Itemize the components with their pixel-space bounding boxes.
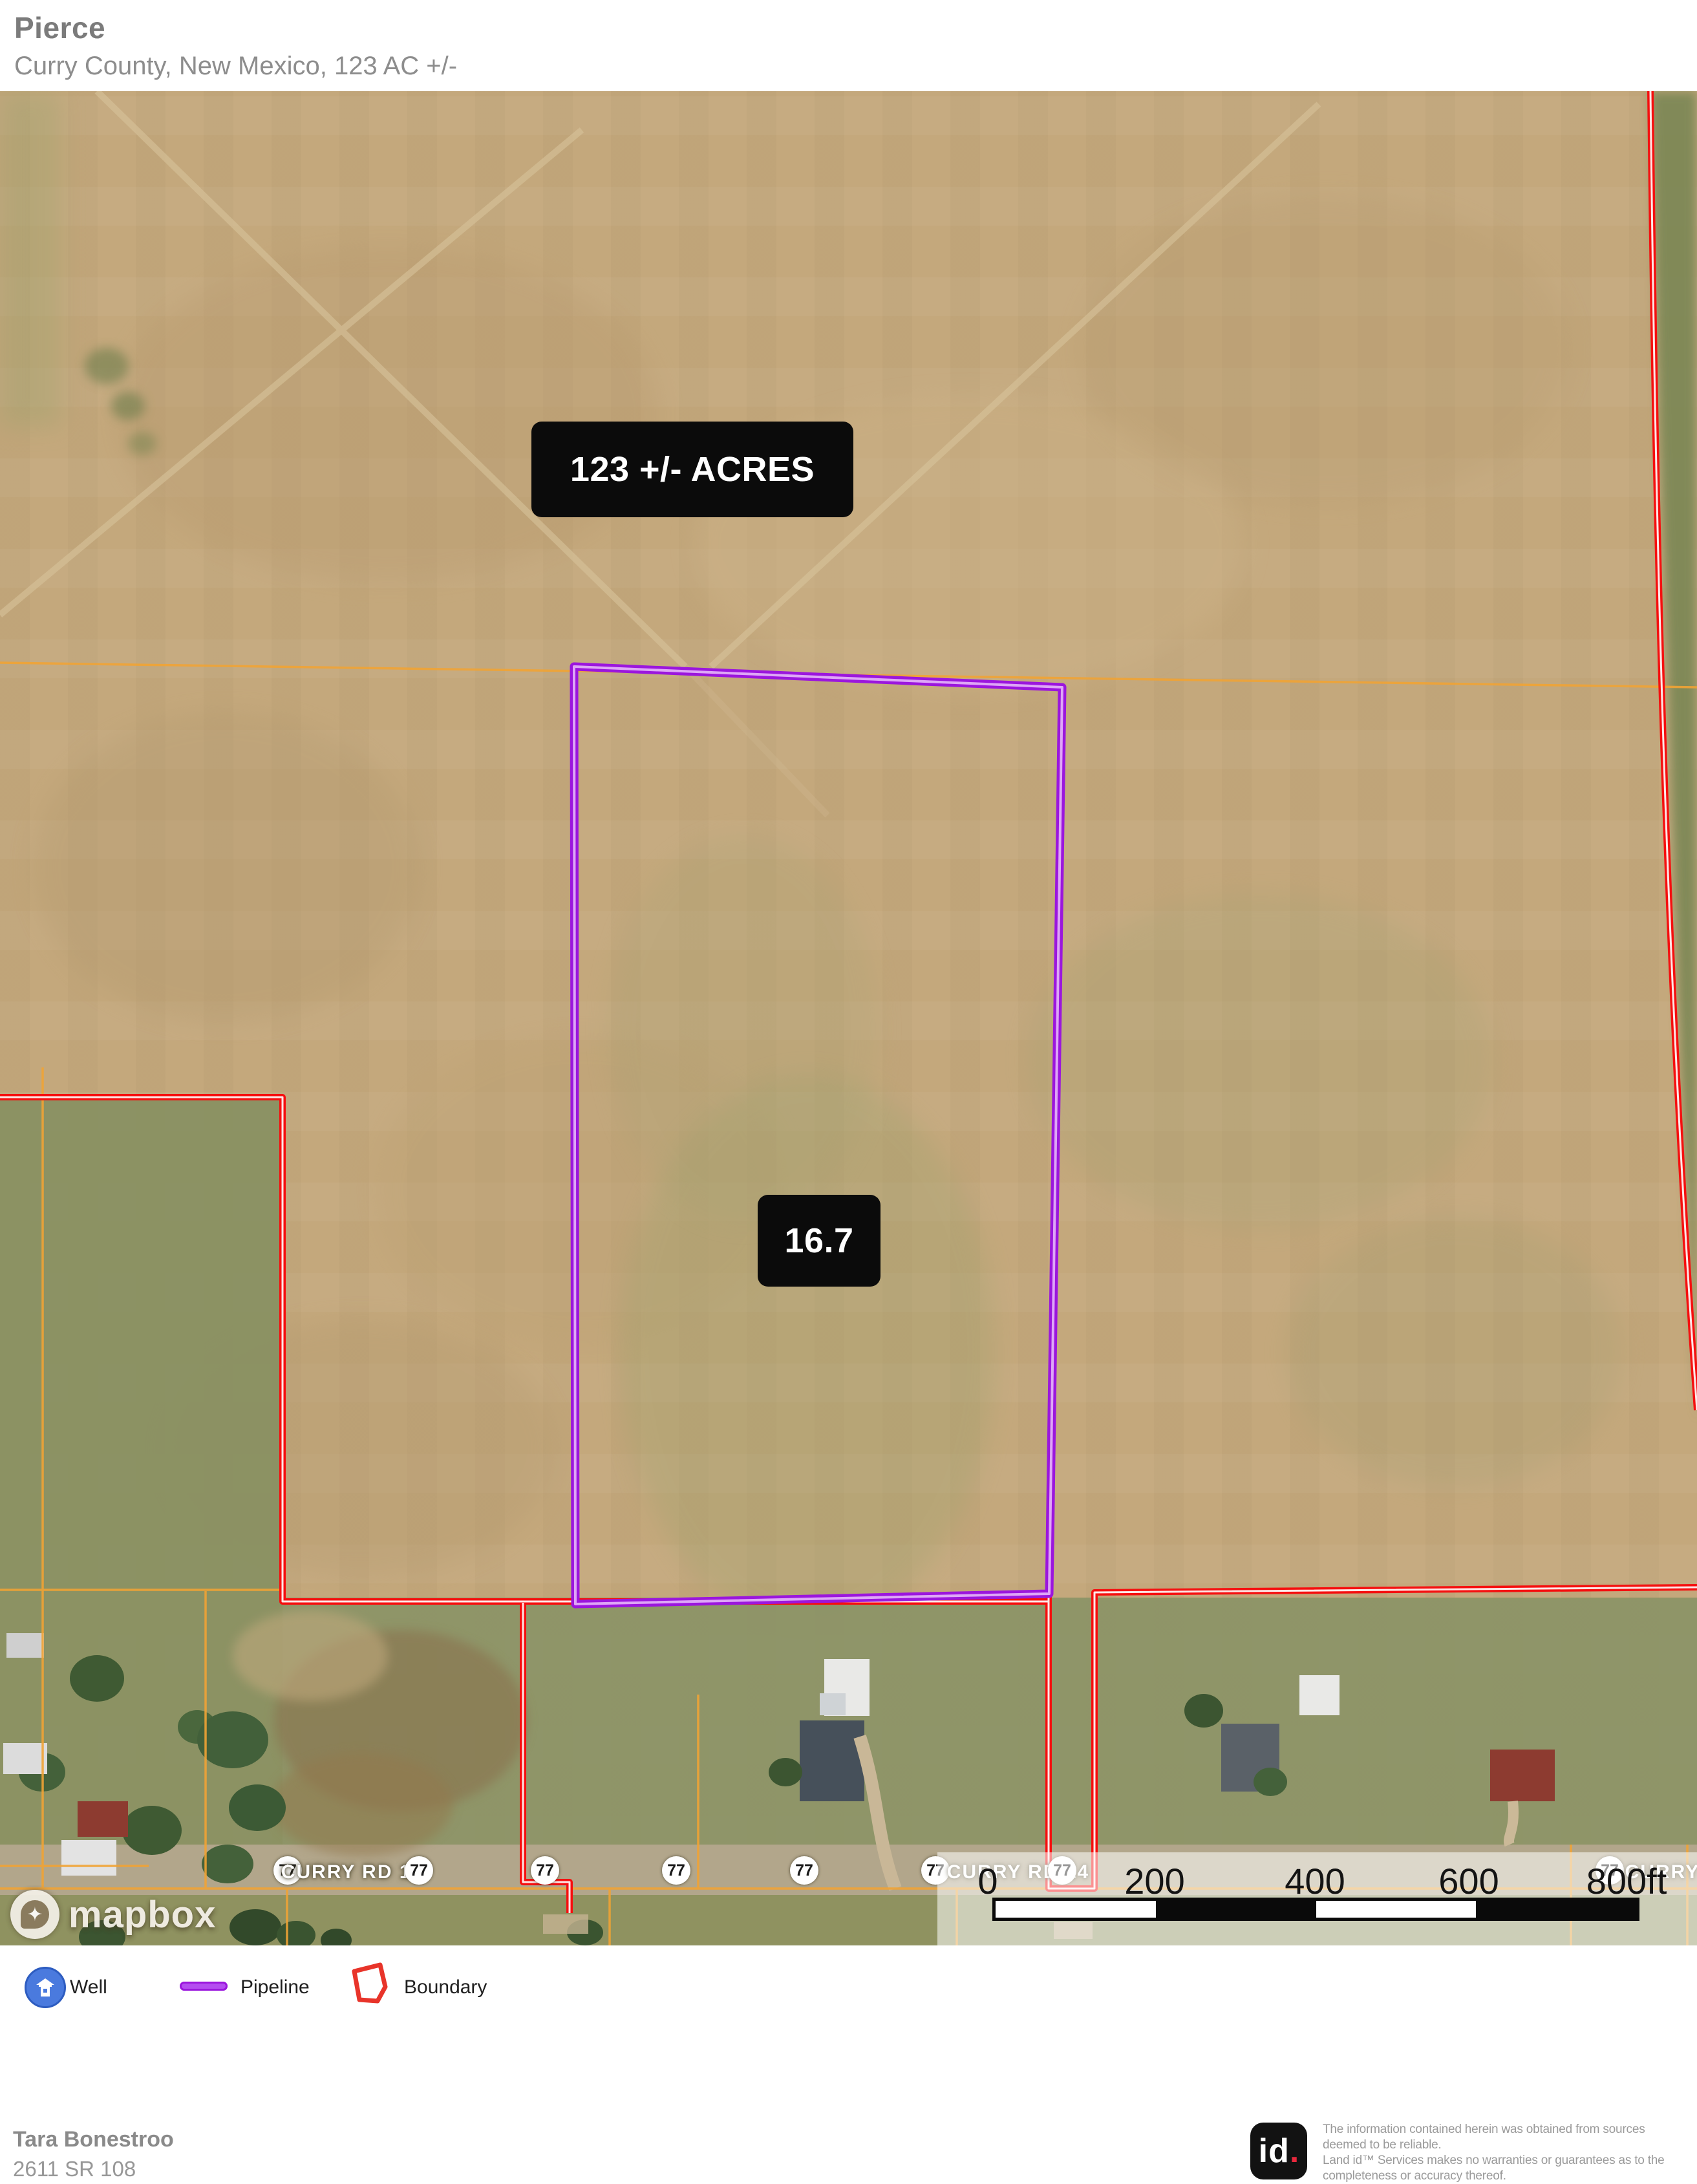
header: Pierce Curry County, New Mexico, 123 AC …	[14, 10, 457, 81]
route-shield-number: 77	[795, 1861, 813, 1880]
road-name-label: CURRY RD 14	[281, 1861, 423, 1883]
route-77-shield: 77	[662, 1856, 690, 1885]
route-shield-number: 77	[410, 1861, 428, 1880]
land-id-logo-dot: .	[1290, 2132, 1299, 2170]
boundary-icon	[348, 1962, 389, 2009]
land-id-logo: id.	[1250, 2123, 1307, 2179]
disclaimer: The information contained herein was obt…	[1323, 2122, 1689, 2184]
disclaimer-line: The information contained herein was obt…	[1323, 2122, 1689, 2137]
page-title: Pierce	[14, 10, 457, 45]
route-77-shield: 77	[405, 1856, 433, 1885]
scale-tick: 400	[1285, 1860, 1345, 1902]
route-shield-number: 77	[536, 1861, 554, 1880]
legend-label-boundary: Boundary	[404, 1976, 487, 1998]
scale-tick: 800ft	[1586, 1860, 1667, 1902]
route-shield-number: 77	[667, 1861, 685, 1880]
map-canvas	[0, 91, 1697, 1945]
mapbox-wordmark: mapbox	[69, 1893, 216, 1936]
land-id-logo-text: id	[1259, 2132, 1290, 2170]
route-77-shield: 77	[531, 1856, 559, 1885]
contact-address: 2611 SR 108	[13, 2157, 136, 2181]
route-77-shield: 77	[790, 1856, 818, 1885]
mapbox-logo-icon: ✦	[10, 1890, 59, 1939]
satellite-map: 123 +/- ACRES 16.7 77 CURRY RD 14 77 77 …	[0, 91, 1697, 1945]
subparcel-acreage-label: 16.7	[758, 1195, 881, 1287]
page-subtitle: Curry County, New Mexico, 123 AC +/-	[14, 52, 457, 81]
scale-tick: 0	[977, 1860, 998, 1902]
scalebar	[992, 1898, 1639, 1921]
well-icon	[25, 1967, 66, 2008]
legend-label-pipeline: Pipeline	[240, 1976, 310, 1998]
mapbox-attribution[interactable]: ✦ mapbox	[10, 1890, 216, 1939]
legend-label-well: Well	[70, 1976, 107, 1998]
scale-tick: 600	[1438, 1860, 1499, 1902]
scale-tick: 200	[1124, 1860, 1184, 1902]
disclaimer-line: deemed to be reliable.	[1323, 2137, 1689, 2153]
acreage-label: 123 +/- ACRES	[531, 422, 853, 517]
disclaimer-line: Land id™ Services makes no warranties or…	[1323, 2153, 1689, 2168]
disclaimer-line: completeness or accuracy thereof.	[1323, 2168, 1689, 2184]
pipeline-icon	[180, 1982, 228, 1991]
map-legend: Well Pipeline Boundary	[0, 1959, 1697, 2030]
contact-name: Tara Bonestroo	[13, 2127, 174, 2152]
